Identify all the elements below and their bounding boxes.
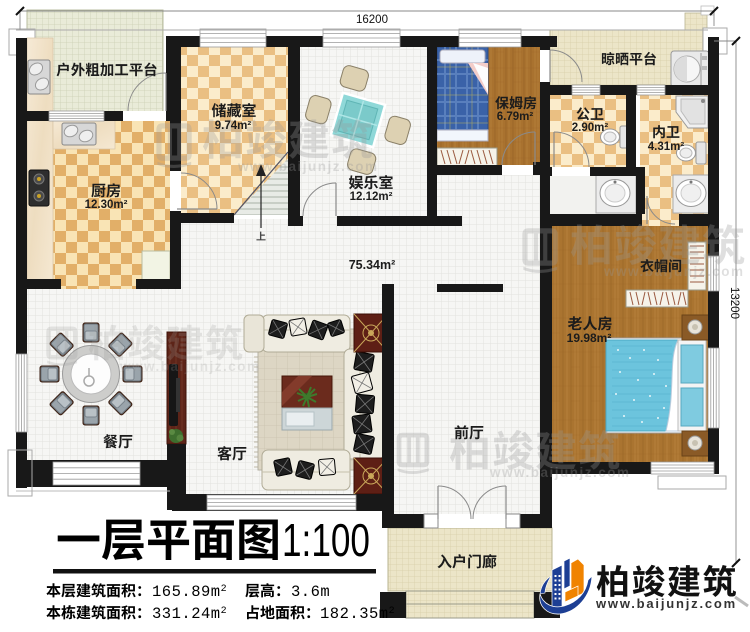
svg-text:165.89m2: 165.89m2 bbox=[152, 583, 227, 601]
svg-text:12.30m²: 12.30m² bbox=[85, 199, 128, 211]
svg-text:6.79m²: 6.79m² bbox=[497, 111, 534, 123]
svg-text:www.baijunjz.com: www.baijunjz.com bbox=[595, 596, 737, 611]
svg-text:16200: 16200 bbox=[356, 14, 388, 26]
svg-text:www.baijunjz.com: www.baijunjz.com bbox=[119, 359, 261, 374]
svg-text:www.baijunjz.com: www.baijunjz.com bbox=[489, 465, 631, 480]
svg-text:331.24m2: 331.24m2 bbox=[152, 605, 227, 623]
svg-text:9.74m²: 9.74m² bbox=[215, 120, 252, 132]
svg-text:13200: 13200 bbox=[728, 287, 740, 319]
svg-text:182.35m2: 182.35m2 bbox=[320, 605, 395, 623]
svg-text:4.31m²: 4.31m² bbox=[648, 141, 685, 153]
svg-text:12.12m²: 12.12m² bbox=[350, 191, 393, 203]
svg-text:75.34m²: 75.34m² bbox=[349, 258, 396, 272]
svg-text:1:100: 1:100 bbox=[282, 514, 370, 566]
svg-text:2.90m²: 2.90m² bbox=[572, 122, 609, 134]
svg-text:3.6m: 3.6m bbox=[291, 583, 330, 601]
svg-text:19.98m²: 19.98m² bbox=[567, 331, 612, 345]
svg-text:www.baijunjz.com: www.baijunjz.com bbox=[237, 159, 379, 174]
